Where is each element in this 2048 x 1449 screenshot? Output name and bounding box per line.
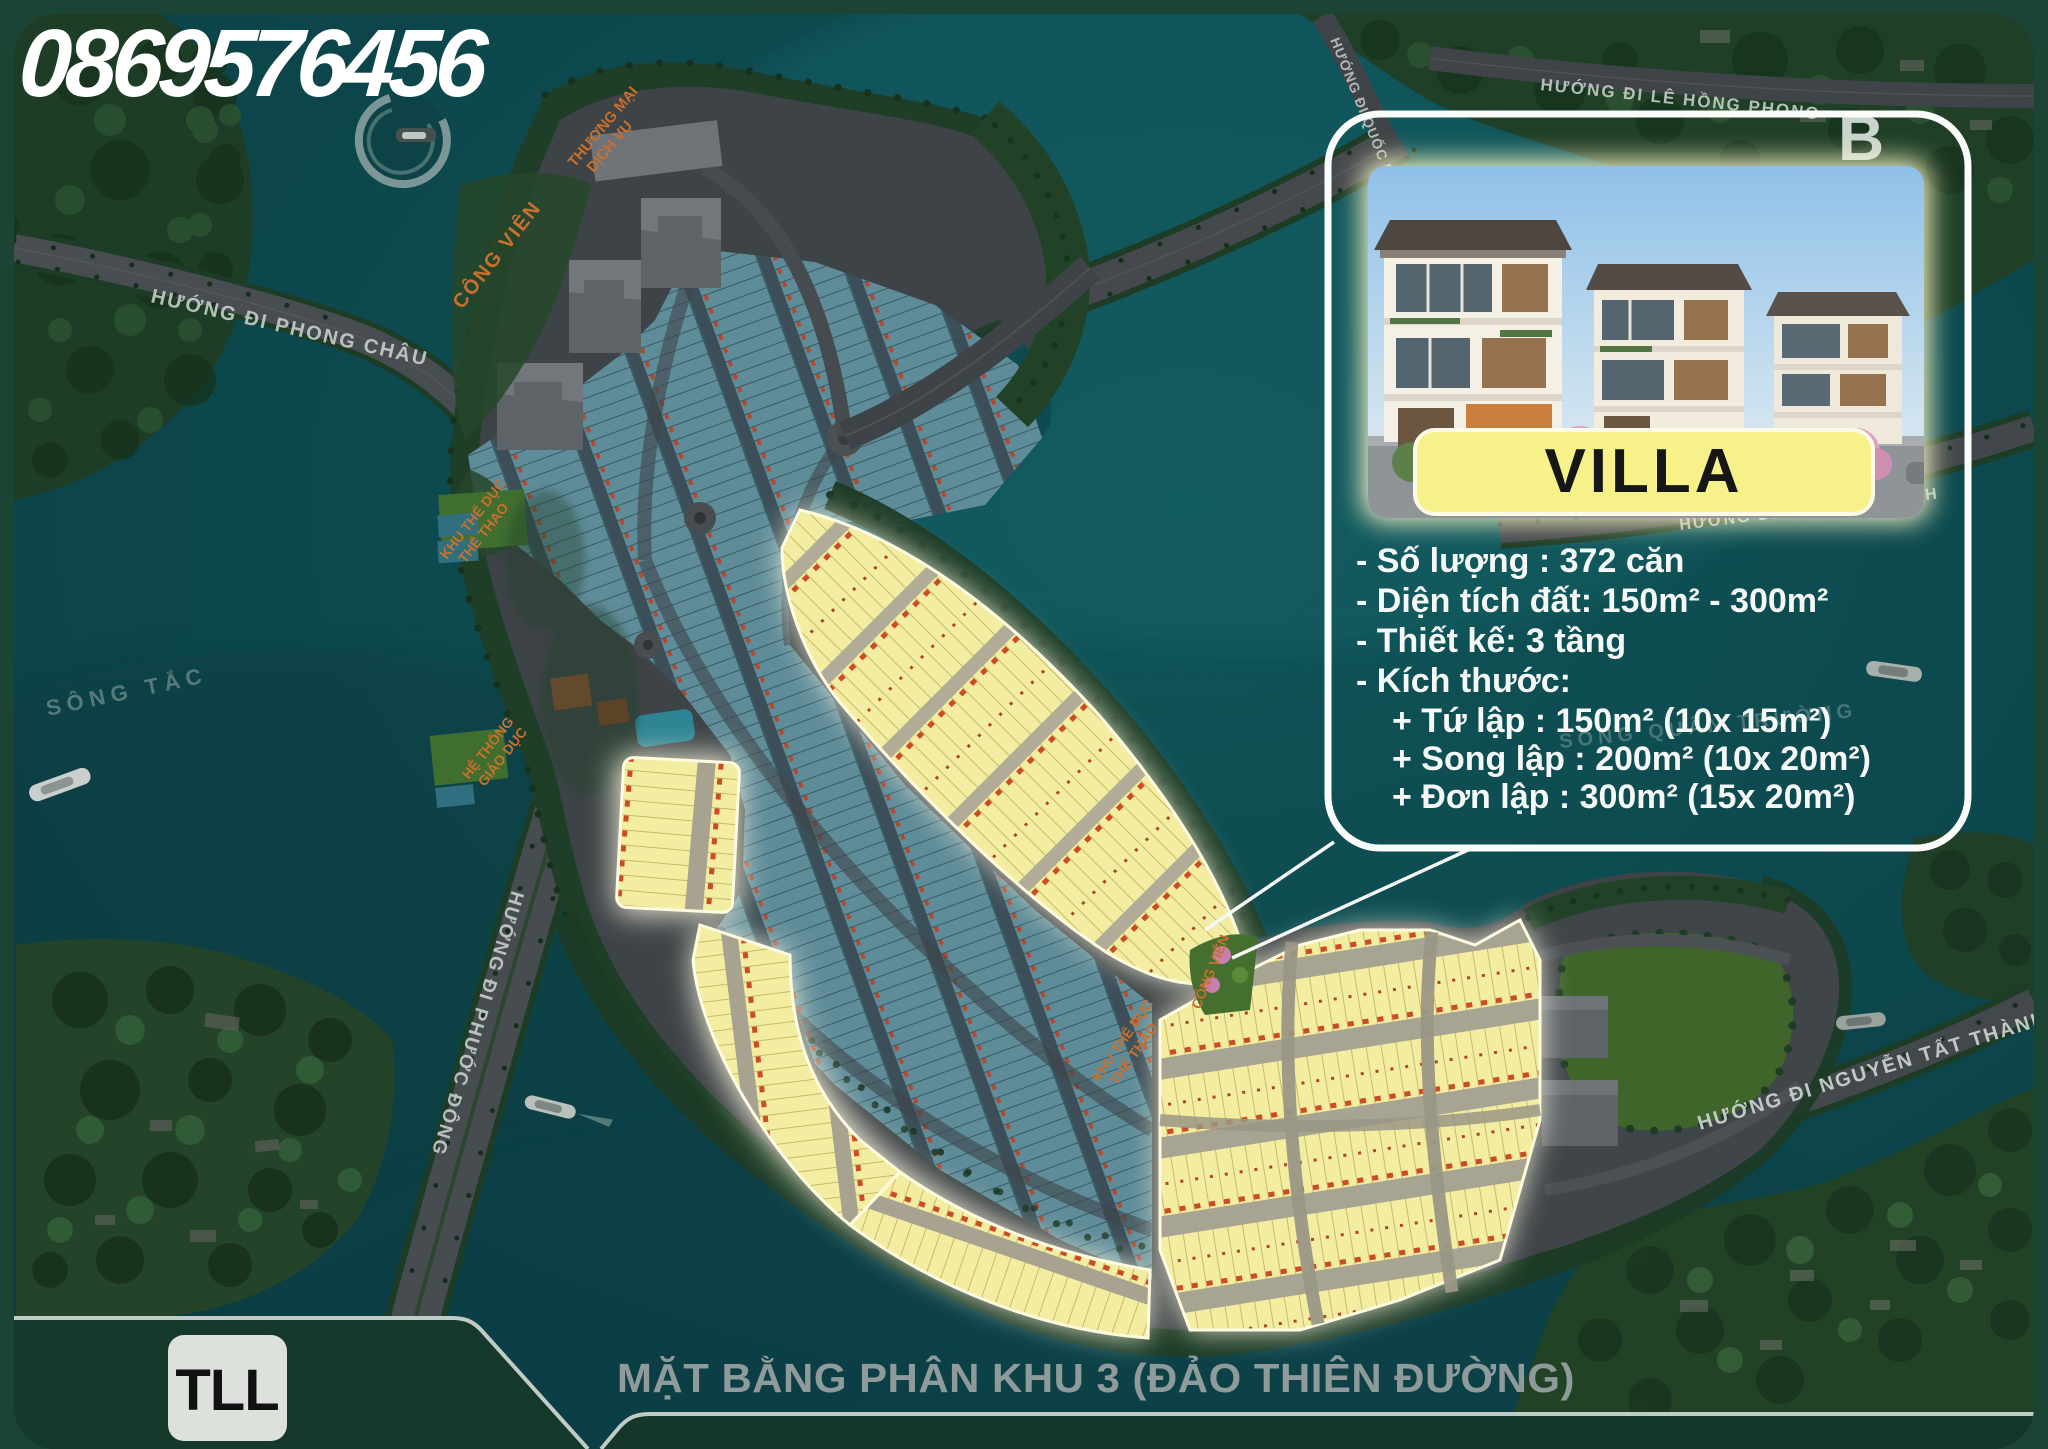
svg-text:MẶT BẰNG PHÂN KHU 3 (ĐẢO THIÊN: MẶT BẰNG PHÂN KHU 3 (ĐẢO THIÊN ĐƯỜNG) xyxy=(617,1355,1575,1401)
svg-text:+ Tứ lập : 150m² (10x 15m²): + Tứ lập : 150m² (10x 15m²) xyxy=(1392,702,1831,740)
svg-text:+ Đơn lập : 300m² (15x 20m²): + Đơn lập : 300m² (15x 20m²) xyxy=(1392,778,1856,816)
svg-text:- Kích thước:: - Kích thước: xyxy=(1356,662,1571,700)
svg-text:+ Song lập : 200m² (10x 20m²): + Song lập : 200m² (10x 20m²) xyxy=(1392,740,1871,778)
svg-text:- Thiết kế: 3 tầng: - Thiết kế: 3 tầng xyxy=(1356,622,1626,660)
svg-text:- Diện tích đất: 150m² - 300m²: - Diện tích đất: 150m² - 300m² xyxy=(1356,582,1828,620)
svg-text:- Số lượng : 372 căn: - Số lượng : 372 căn xyxy=(1356,542,1684,580)
svg-text:0869576456: 0869576456 xyxy=(16,10,492,117)
svg-text:TLL: TLL xyxy=(175,1358,278,1423)
svg-text:VILLA: VILLA xyxy=(1544,437,1743,506)
